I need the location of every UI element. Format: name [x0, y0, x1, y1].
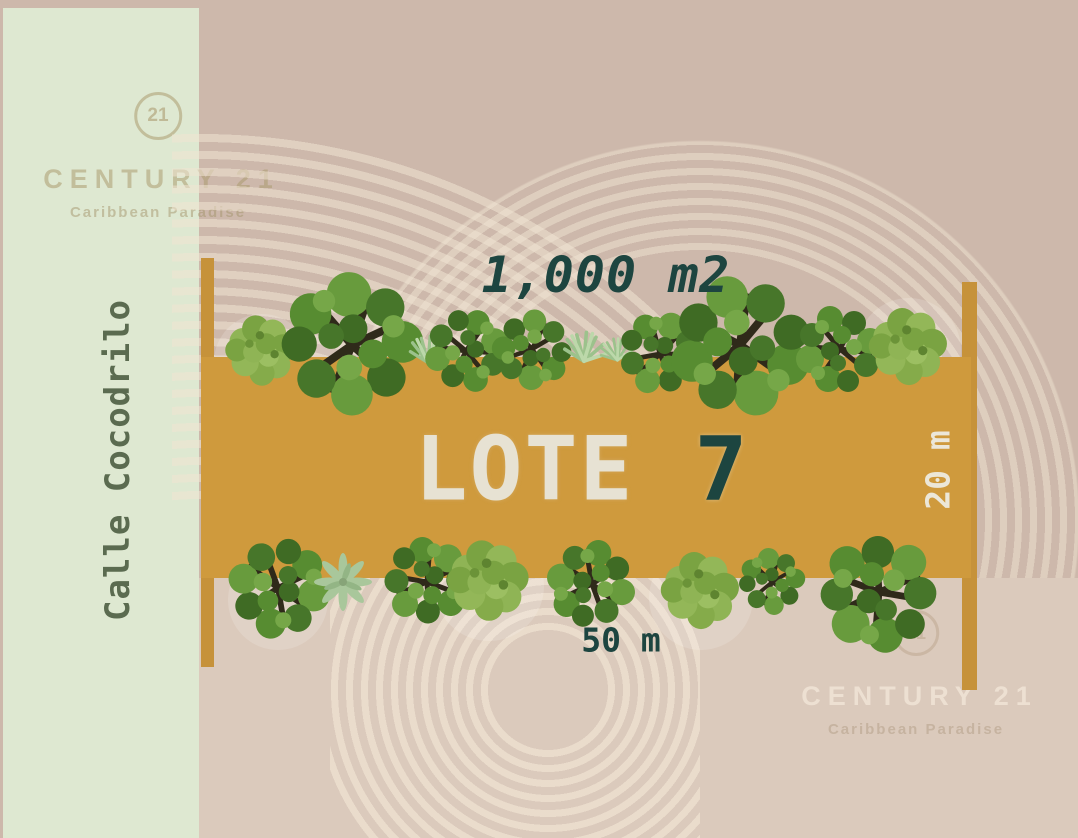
- palm: [314, 553, 372, 611]
- lot-plan-graphic: [0, 0, 1078, 838]
- lot-site-plan: 21 CENTURY 21 Caribbean Paradise 21 CENT…: [0, 0, 1078, 838]
- shrub: [565, 332, 606, 361]
